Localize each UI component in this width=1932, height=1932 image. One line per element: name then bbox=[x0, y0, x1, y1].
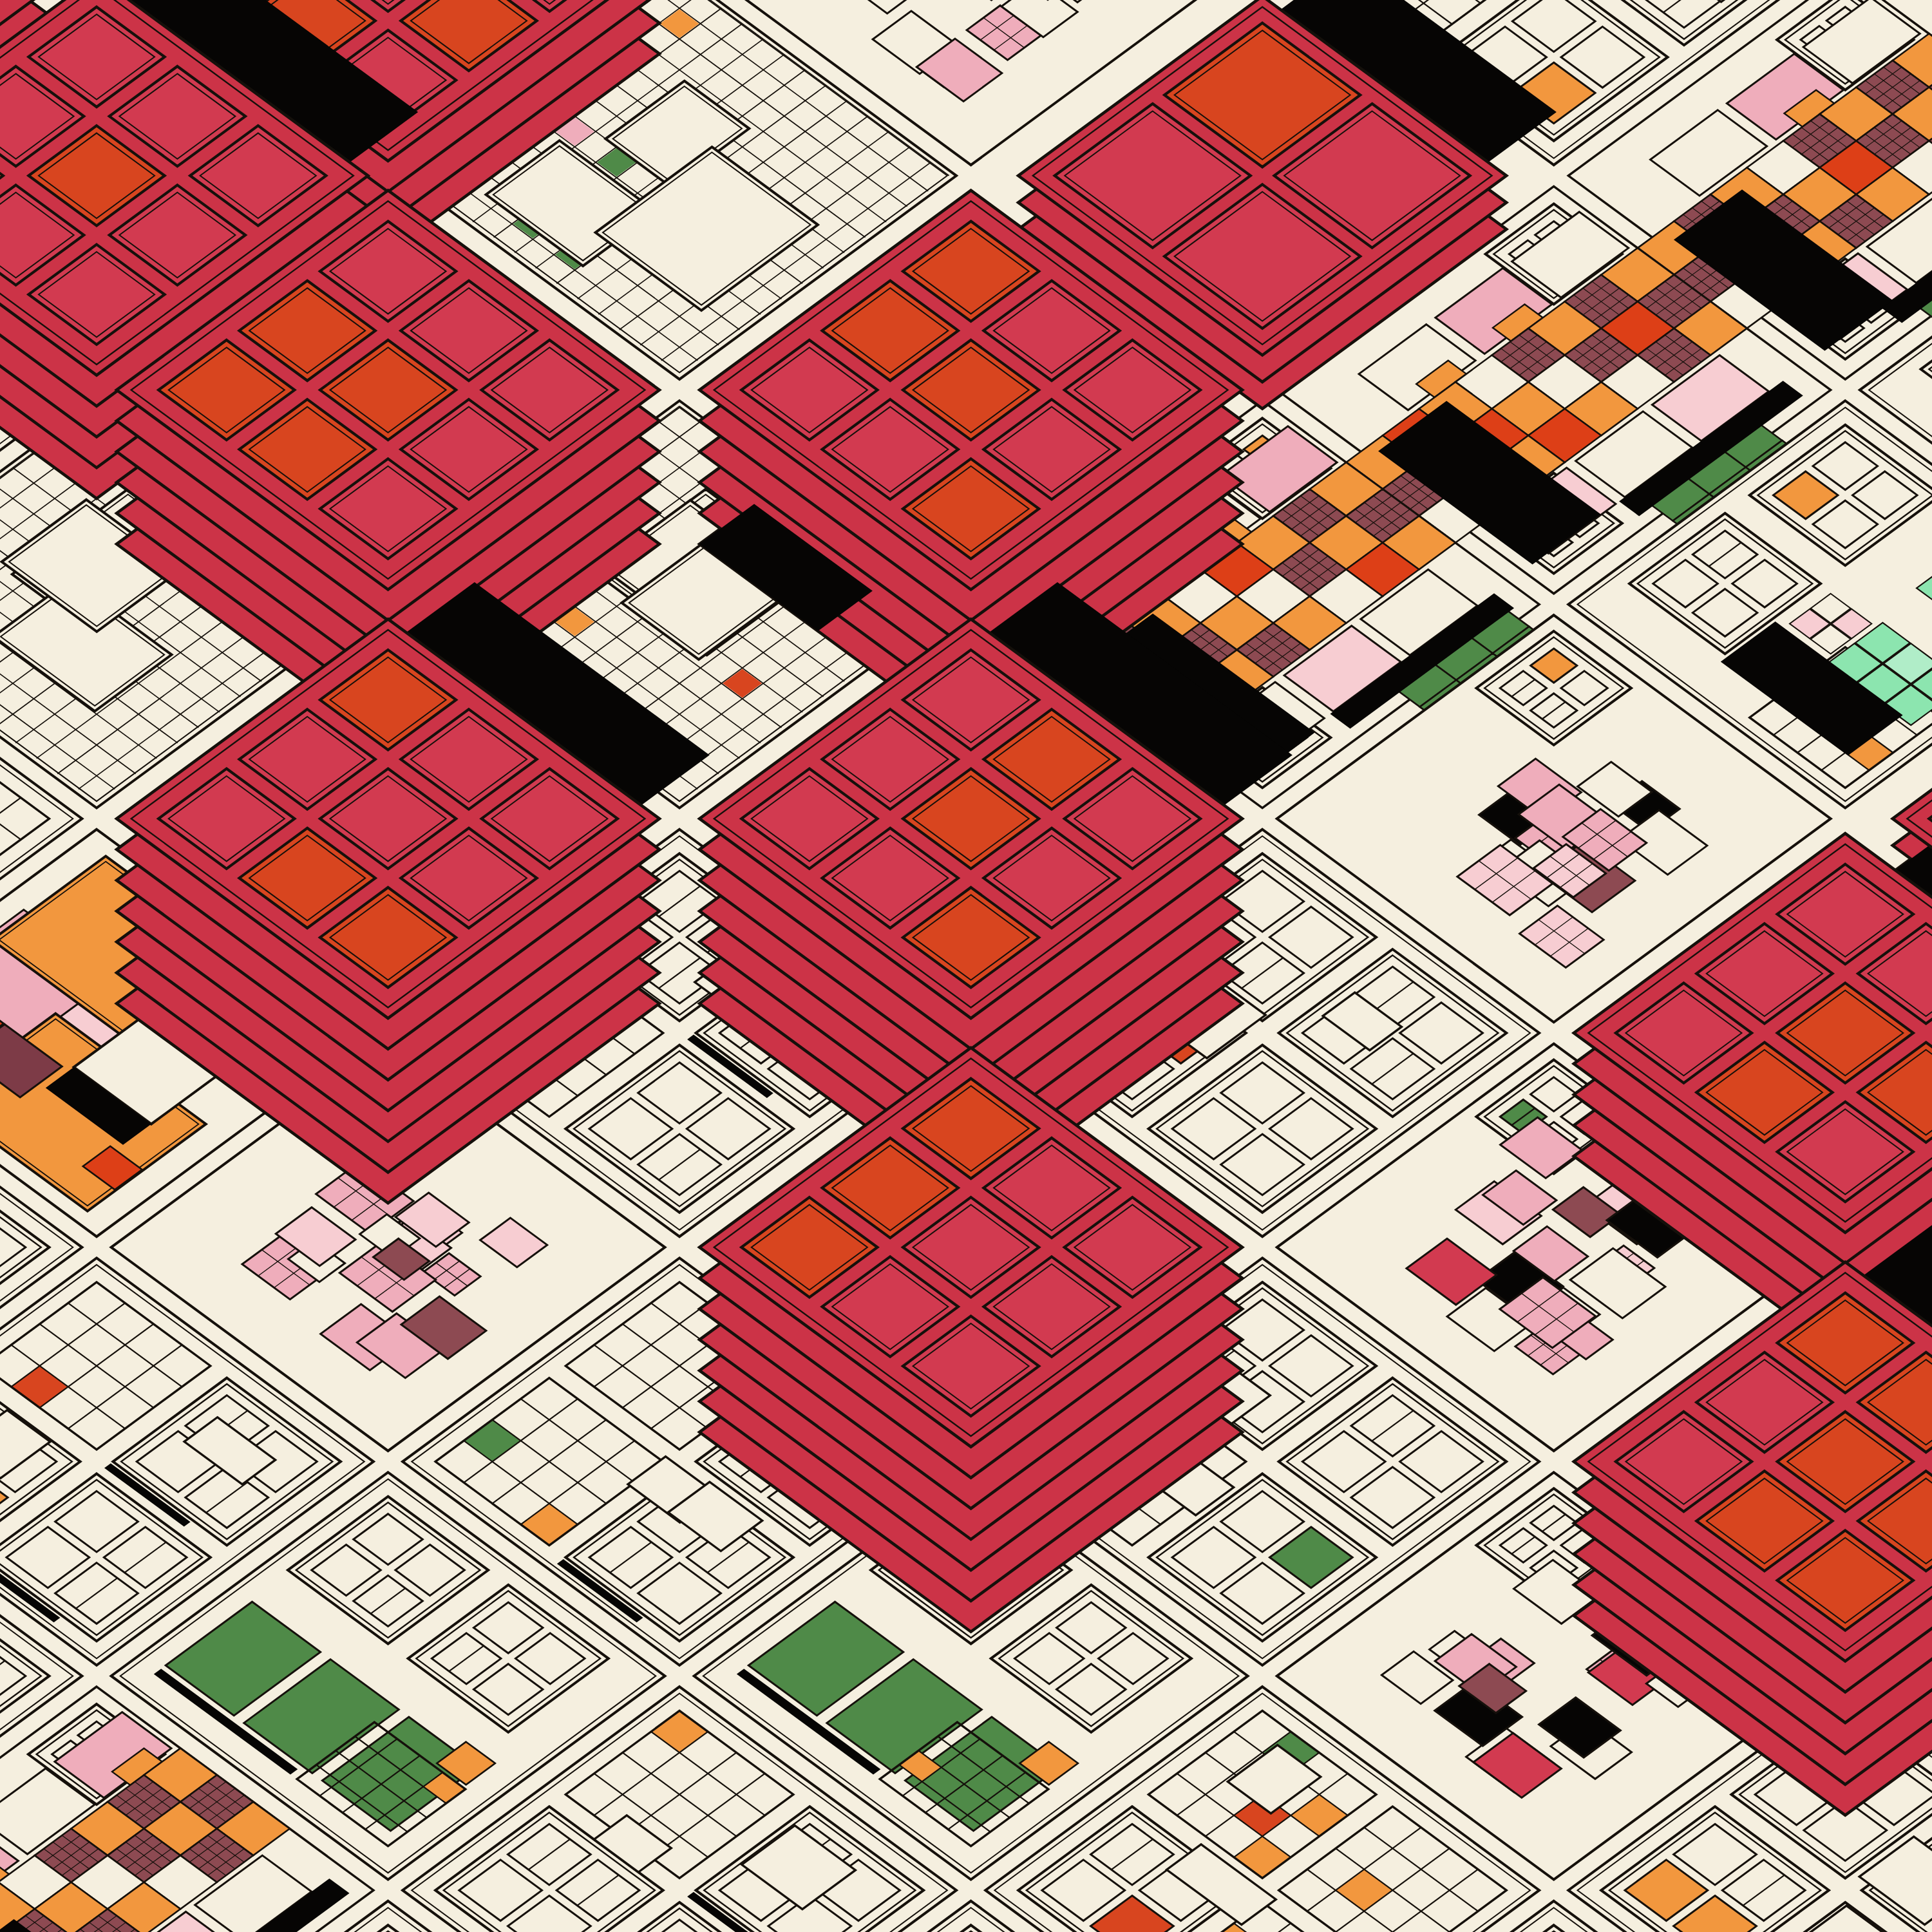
artwork-canvas bbox=[0, 0, 1932, 1932]
artwork bbox=[0, 0, 1932, 1932]
